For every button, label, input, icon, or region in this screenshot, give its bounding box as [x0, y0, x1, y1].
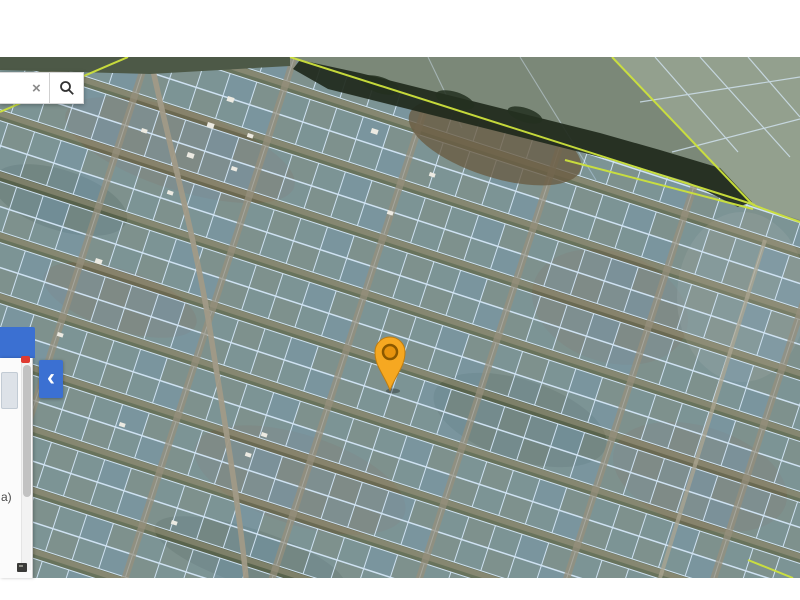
panel-item[interactable] [1, 372, 18, 409]
panel-header [0, 327, 35, 358]
close-icon: × [32, 80, 41, 97]
panel-bottom-icon [17, 563, 27, 572]
search-icon [59, 80, 75, 96]
app-window: × a) ‹ [0, 0, 800, 600]
panel-text: a) [1, 490, 12, 504]
search-submit-button[interactable] [49, 73, 83, 103]
video-icon [21, 356, 30, 363]
satellite-layer [0, 57, 800, 578]
panel-scrollbar[interactable] [21, 363, 31, 570]
search-input-area[interactable]: × [0, 73, 49, 103]
search-input[interactable] [5, 81, 23, 96]
search-clear-button[interactable]: × [23, 73, 49, 103]
map-canvas[interactable] [0, 57, 800, 578]
scrollbar-thumb[interactable] [23, 365, 31, 497]
chevron-left-icon: ‹ [47, 366, 55, 390]
search-box: × [0, 72, 84, 104]
panel-collapse-button[interactable]: ‹ [39, 360, 63, 398]
